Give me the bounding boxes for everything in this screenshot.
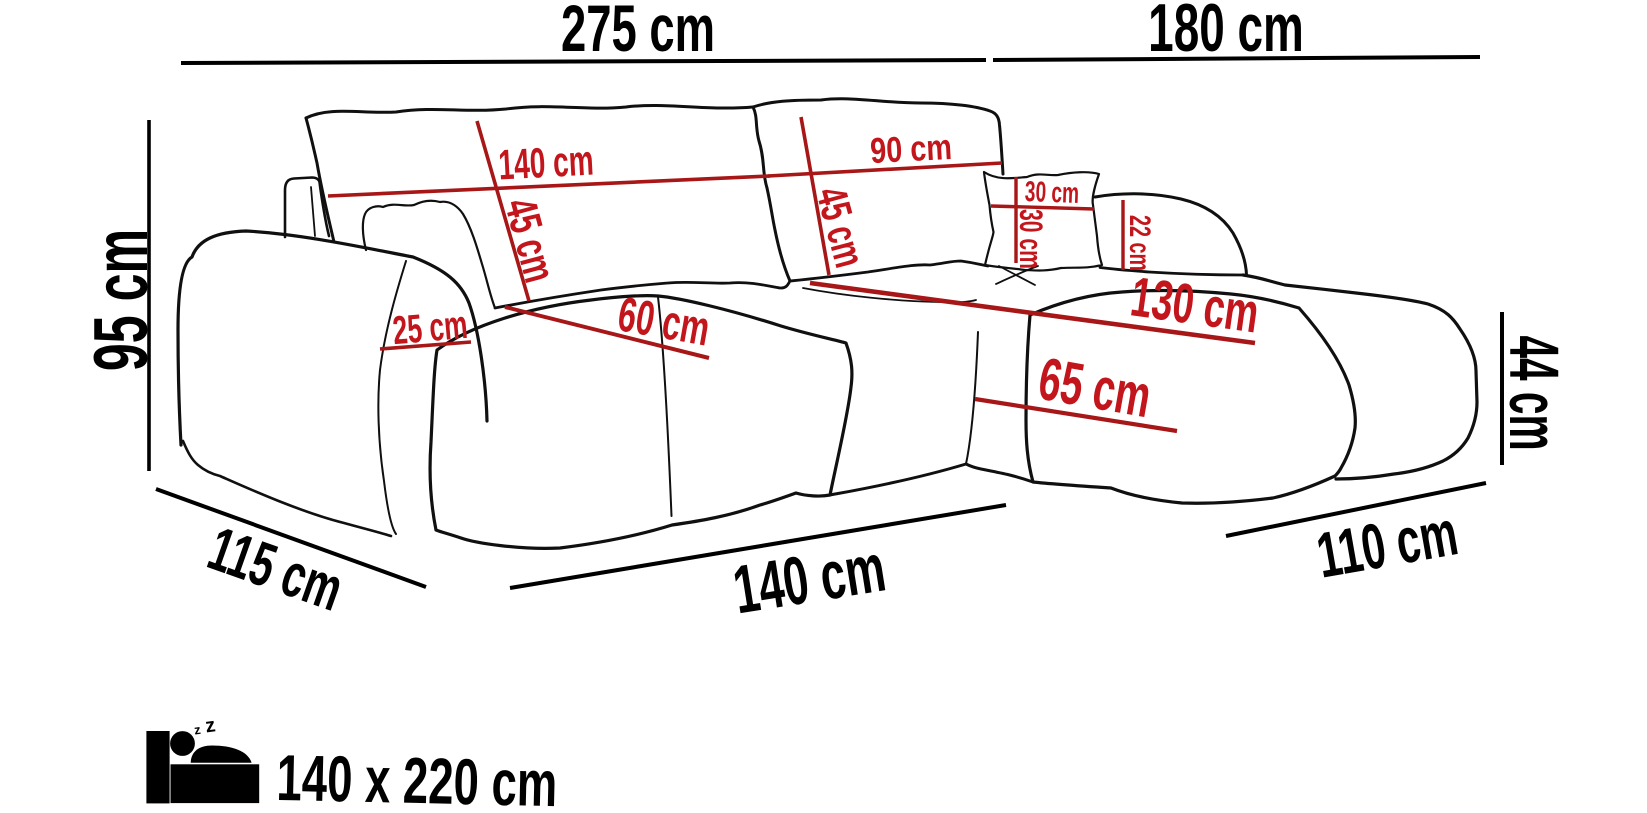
svg-text:275 cm: 275 cm bbox=[561, 0, 715, 66]
svg-text:180 cm: 180 cm bbox=[1148, 0, 1304, 66]
svg-text:140 x 220 cm: 140 x 220 cm bbox=[276, 741, 558, 813]
svg-text:30 cm: 30 cm bbox=[1013, 209, 1050, 269]
svg-text:95 cm: 95 cm bbox=[79, 229, 164, 371]
svg-text:22 cm: 22 cm bbox=[1123, 215, 1156, 271]
svg-text:140 cm: 140 cm bbox=[497, 136, 595, 189]
svg-text:25 cm: 25 cm bbox=[391, 302, 469, 353]
svg-text:90 cm: 90 cm bbox=[869, 126, 953, 171]
svg-text:44 cm: 44 cm bbox=[1494, 335, 1572, 450]
svg-text:30 cm: 30 cm bbox=[1024, 176, 1079, 210]
